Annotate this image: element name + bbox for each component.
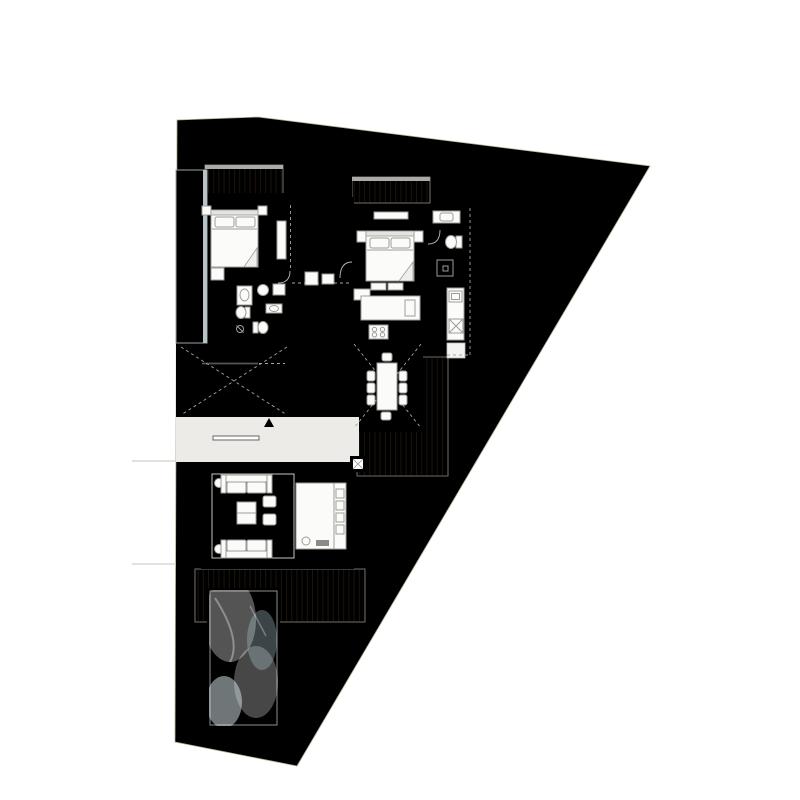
floor-plan-drawing <box>0 0 800 800</box>
side-landing <box>447 343 465 358</box>
floor-plan-page <box>0 0 800 800</box>
deck-corner-shaft <box>350 456 366 472</box>
pergola-roof <box>176 170 207 343</box>
media-cabinet <box>296 483 346 549</box>
sofa-bottom <box>221 540 272 558</box>
site-boundary-lines <box>132 461 176 564</box>
staircase-lower <box>213 436 259 440</box>
swimming-pool <box>204 578 280 728</box>
bedroom-deck <box>205 165 283 195</box>
sofa-top <box>221 475 272 493</box>
hall-floor <box>289 197 354 345</box>
entry-walkway <box>291 166 352 199</box>
master-deck <box>352 177 430 203</box>
